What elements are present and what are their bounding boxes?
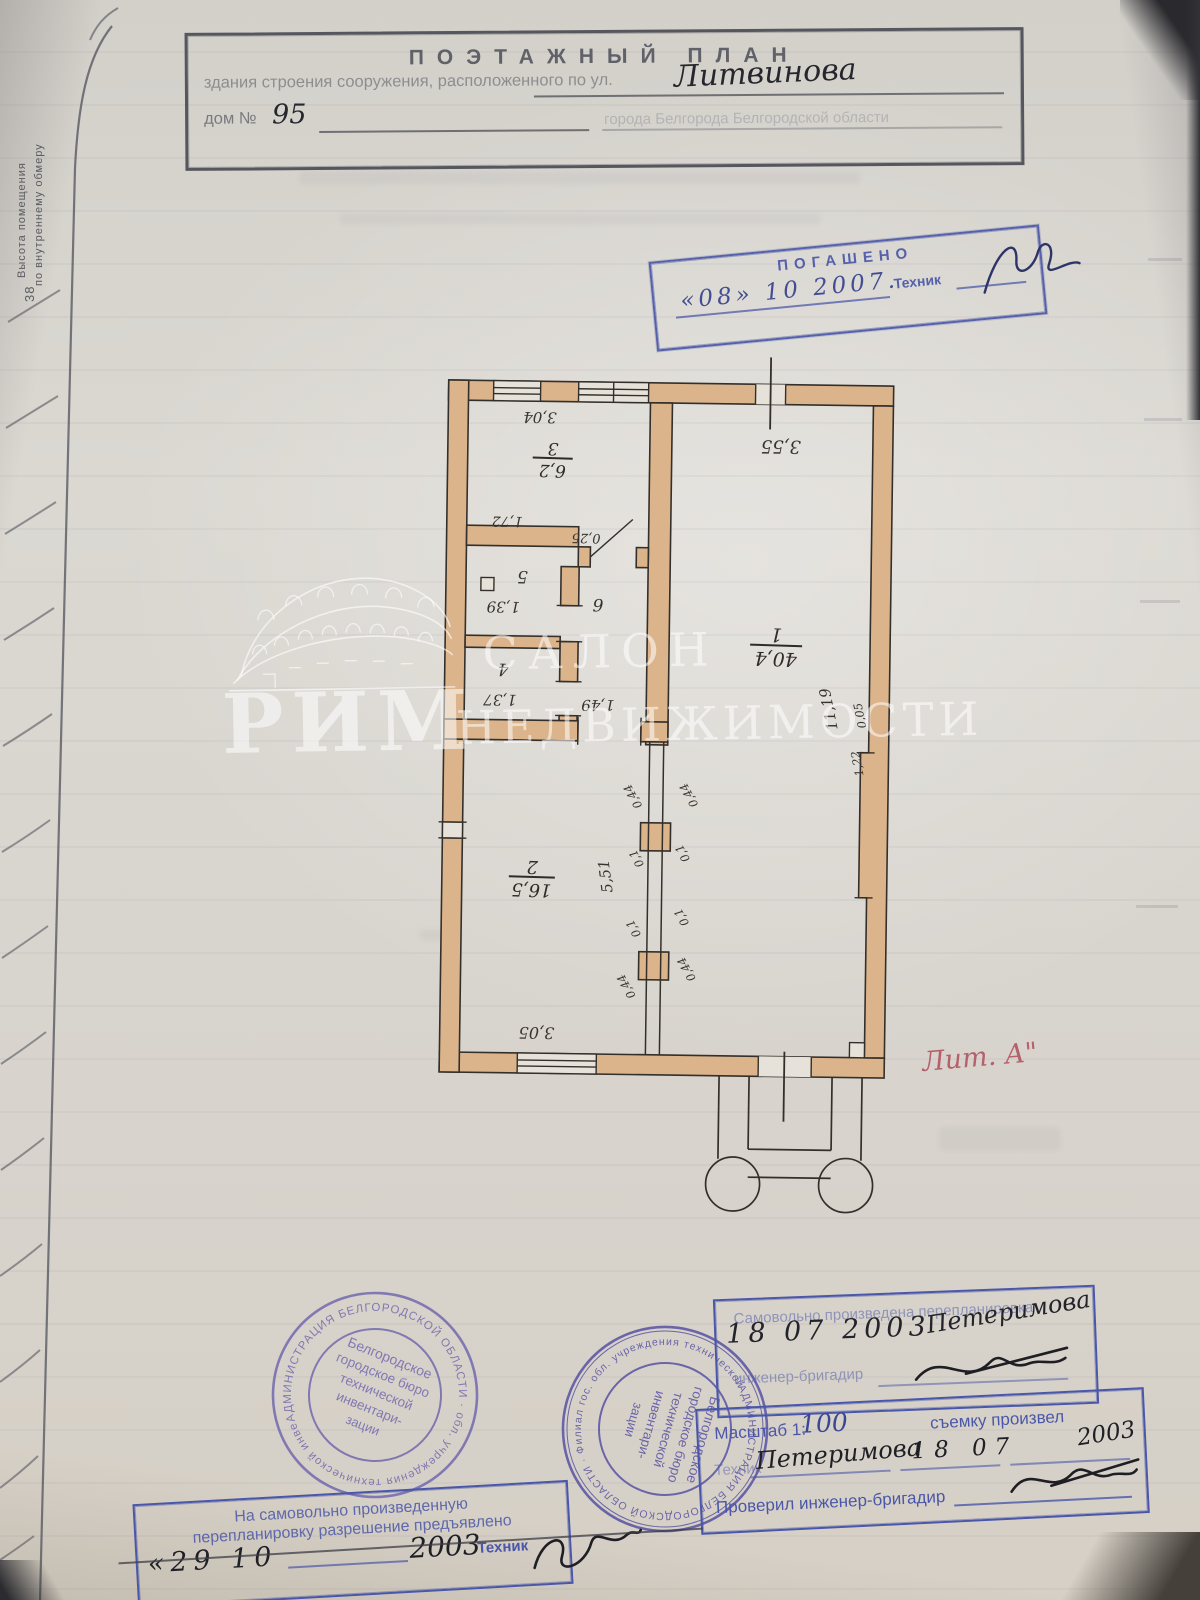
room-1-number: 1 [770, 623, 783, 643]
dim-room4-width: 1,37 [483, 690, 517, 708]
room-1-area: 40,4 [754, 647, 797, 668]
title-block: ПОЭТАЖНЫЙ ПЛАН здания строения сооружени… [185, 27, 1025, 171]
room-3-label: 6,2 3 [532, 438, 573, 479]
check-label: Проверил инженер-бригадир [716, 1487, 946, 1518]
margin-label-line1: Высота помещения [16, 162, 28, 278]
dim-room2-width: 3,05 [519, 1023, 555, 1042]
ghost-dash [1148, 258, 1182, 261]
scale-year-handwritten: 2003 [1075, 1417, 1137, 1452]
photo-edge-right [1186, 0, 1200, 420]
photo-corner-top-right [1120, 0, 1200, 100]
room-1-label: 40,4 1 [749, 623, 802, 668]
room-2-area: 16,5 [511, 878, 552, 898]
house-number-label: дом № [204, 109, 257, 127]
thin-partition [645, 742, 663, 1055]
ghost-dash [1144, 418, 1182, 421]
street-name-handwritten: Литвинова [673, 52, 857, 95]
scale-value-handwritten: 100 [799, 1408, 848, 1439]
dim-room5-width: 1,39 [486, 597, 520, 615]
dim-top-left: 3,04 [523, 408, 557, 426]
dim-top-right: 3,55 [761, 435, 801, 457]
house-number-handwritten: 95 [272, 99, 307, 130]
room-2-number: 2 [526, 856, 538, 875]
scanned-floor-plan-page: Высота помещения по внутреннему обмеру 3… [0, 0, 1200, 1600]
remodel-date-handwritten: 18 07 2003 [726, 1311, 932, 1350]
ghost-text [340, 214, 820, 224]
header-line-2: здания строения сооружения, расположенно… [204, 68, 1005, 108]
ghost-text [300, 172, 860, 184]
floor-plan-drawing [424, 347, 906, 1243]
ghost-text [940, 1128, 1060, 1150]
ghost-dash [1136, 905, 1178, 908]
page-title: ПОЭТАЖНЫЙ ПЛАН [188, 42, 1021, 72]
colosseum-icon [221, 555, 458, 694]
liter-annotation: Лит. А" [921, 1037, 1039, 1078]
dim-hall-width: 1,49 [581, 696, 615, 714]
remodel-name-handwritten: Петеримова [924, 1285, 1092, 1339]
porch [705, 1076, 874, 1213]
margin-label: Высота помещения [16, 58, 28, 278]
room-4-number: 4 [498, 659, 509, 679]
scale-date-handwritten: 18 07 [911, 1433, 1018, 1464]
cancelled-stamp-tech-label: Техник [893, 271, 942, 291]
dim-jog: 0,25 [571, 530, 600, 545]
ghost-dash [1140, 600, 1180, 603]
margin-label-2: по внутреннему обмеру [33, 66, 45, 286]
scale-stamp: Масштаб 1: 100 съемку произвел Техник Пе… [695, 1387, 1150, 1535]
room-6-number: 6 [593, 594, 604, 614]
remodel-stamp-line2: инженер-бригадир [734, 1366, 864, 1388]
photo-corner-bottom-right [1040, 1532, 1200, 1600]
cancelled-stamp: ПОГАШЕНО «08» 10 2007. Техник [649, 224, 1048, 351]
header-line2-printed: здания строения сооружения, расположенно… [204, 71, 613, 92]
room-2-label: 16,5 2 [508, 855, 555, 898]
city-faint-text: города Белгорода Белгородской области [604, 109, 889, 128]
margin-page-number: 38 [22, 262, 37, 302]
room-3-number: 3 [547, 438, 558, 456]
header-line-3: дом № 95 города Белгорода Белгородской о… [204, 104, 1005, 144]
remodel-signature-ink [907, 1335, 1079, 1396]
dim-mid-left: 1,72 [492, 513, 523, 529]
floor-plan: 6,2 3 40,4 1 16,5 2 3,04 3,55 1,72 0,25 … [424, 347, 906, 1243]
survey-label: съемку произвел [930, 1407, 1065, 1434]
room-3-area: 6,2 [539, 460, 567, 479]
room-5-number: 5 [517, 566, 528, 586]
scale-label: Масштаб 1: [714, 1420, 807, 1444]
